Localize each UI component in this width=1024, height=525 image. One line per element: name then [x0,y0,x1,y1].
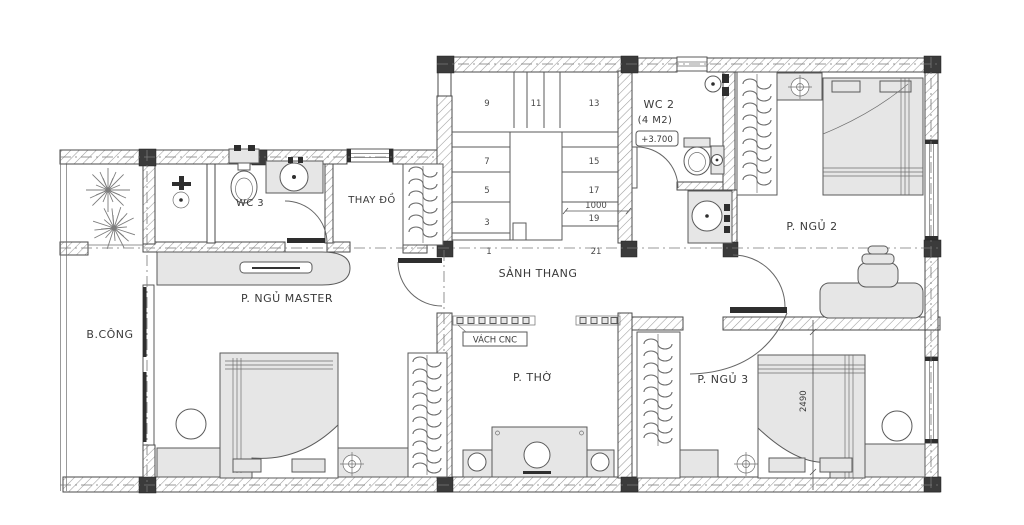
room-label-master: P. NGỦ MASTER [241,291,333,305]
stair-step-number: 9 [484,99,489,109]
bench-platform [865,444,925,477]
stair-step-number: 17 [589,186,600,196]
room-label-dressing: THAY ĐỒ [347,192,395,206]
room-label-balcony: B.CÔNG [86,328,133,341]
stair-step-number: 5 [484,186,489,196]
stair-step-number: 15 [589,157,600,167]
stair-step-number: 13 [589,99,600,109]
room-label-worship: P. THỜ [513,371,553,384]
balcony-slider-icon [143,285,154,445]
bench-platform [157,448,220,477]
stool-icon [882,411,912,441]
stair-step-number: 7 [484,157,489,167]
floor-plan-canvas: 9 11 13 7 15 5 17 3 19 1000 1 21 B.CÔNG [0,0,1024,525]
room-label-bedroom2: P. NGỦ 2 [786,219,837,233]
bed [758,355,865,478]
lavabo-counter [688,191,732,243]
desk [820,283,923,318]
sink-icon [266,157,323,193]
svg-text:1000: 1000 [585,201,607,211]
window-icon [925,357,938,443]
svg-text:2490: 2490 [799,390,809,412]
room-label-wc3: WC 3 [236,198,264,209]
svg-text:VÁCH CNC: VÁCH CNC [473,334,517,346]
stair-step-number: 11 [531,99,542,109]
stair-step-number: 3 [484,218,489,228]
vanity-counter [157,252,350,285]
wardrobe-icon [637,332,680,478]
plant-icon [86,168,130,212]
stair-base-number: 21 [591,247,602,257]
wardrobe-icon [408,353,447,477]
stair-base-number: 1 [486,247,491,257]
bed [823,78,923,195]
stair-step-number: 19 [589,214,600,224]
bench-platform [680,450,718,477]
wardrobe-icon [403,164,443,245]
bed [220,353,338,478]
window-icon [925,140,938,240]
level-marker: +3.700 [636,131,678,146]
room-label-hall: SẢNH THANG [499,266,578,280]
room-label-bedroom3: P. NGỦ 3 [697,372,748,386]
window-icon [347,149,393,162]
sink-icon [711,146,724,174]
wardrobe-icon [737,72,777,195]
svg-text:+3.700: +3.700 [641,135,672,145]
wc2-area-label: (4 M2) [638,115,673,126]
room-label-wc2: WC 2 [643,98,674,111]
floor-plan-page: 9 11 13 7 15 5 17 3 19 1000 1 21 B.CÔNG [0,0,1024,525]
stool-icon [176,409,206,439]
toilet-icon [684,138,710,175]
